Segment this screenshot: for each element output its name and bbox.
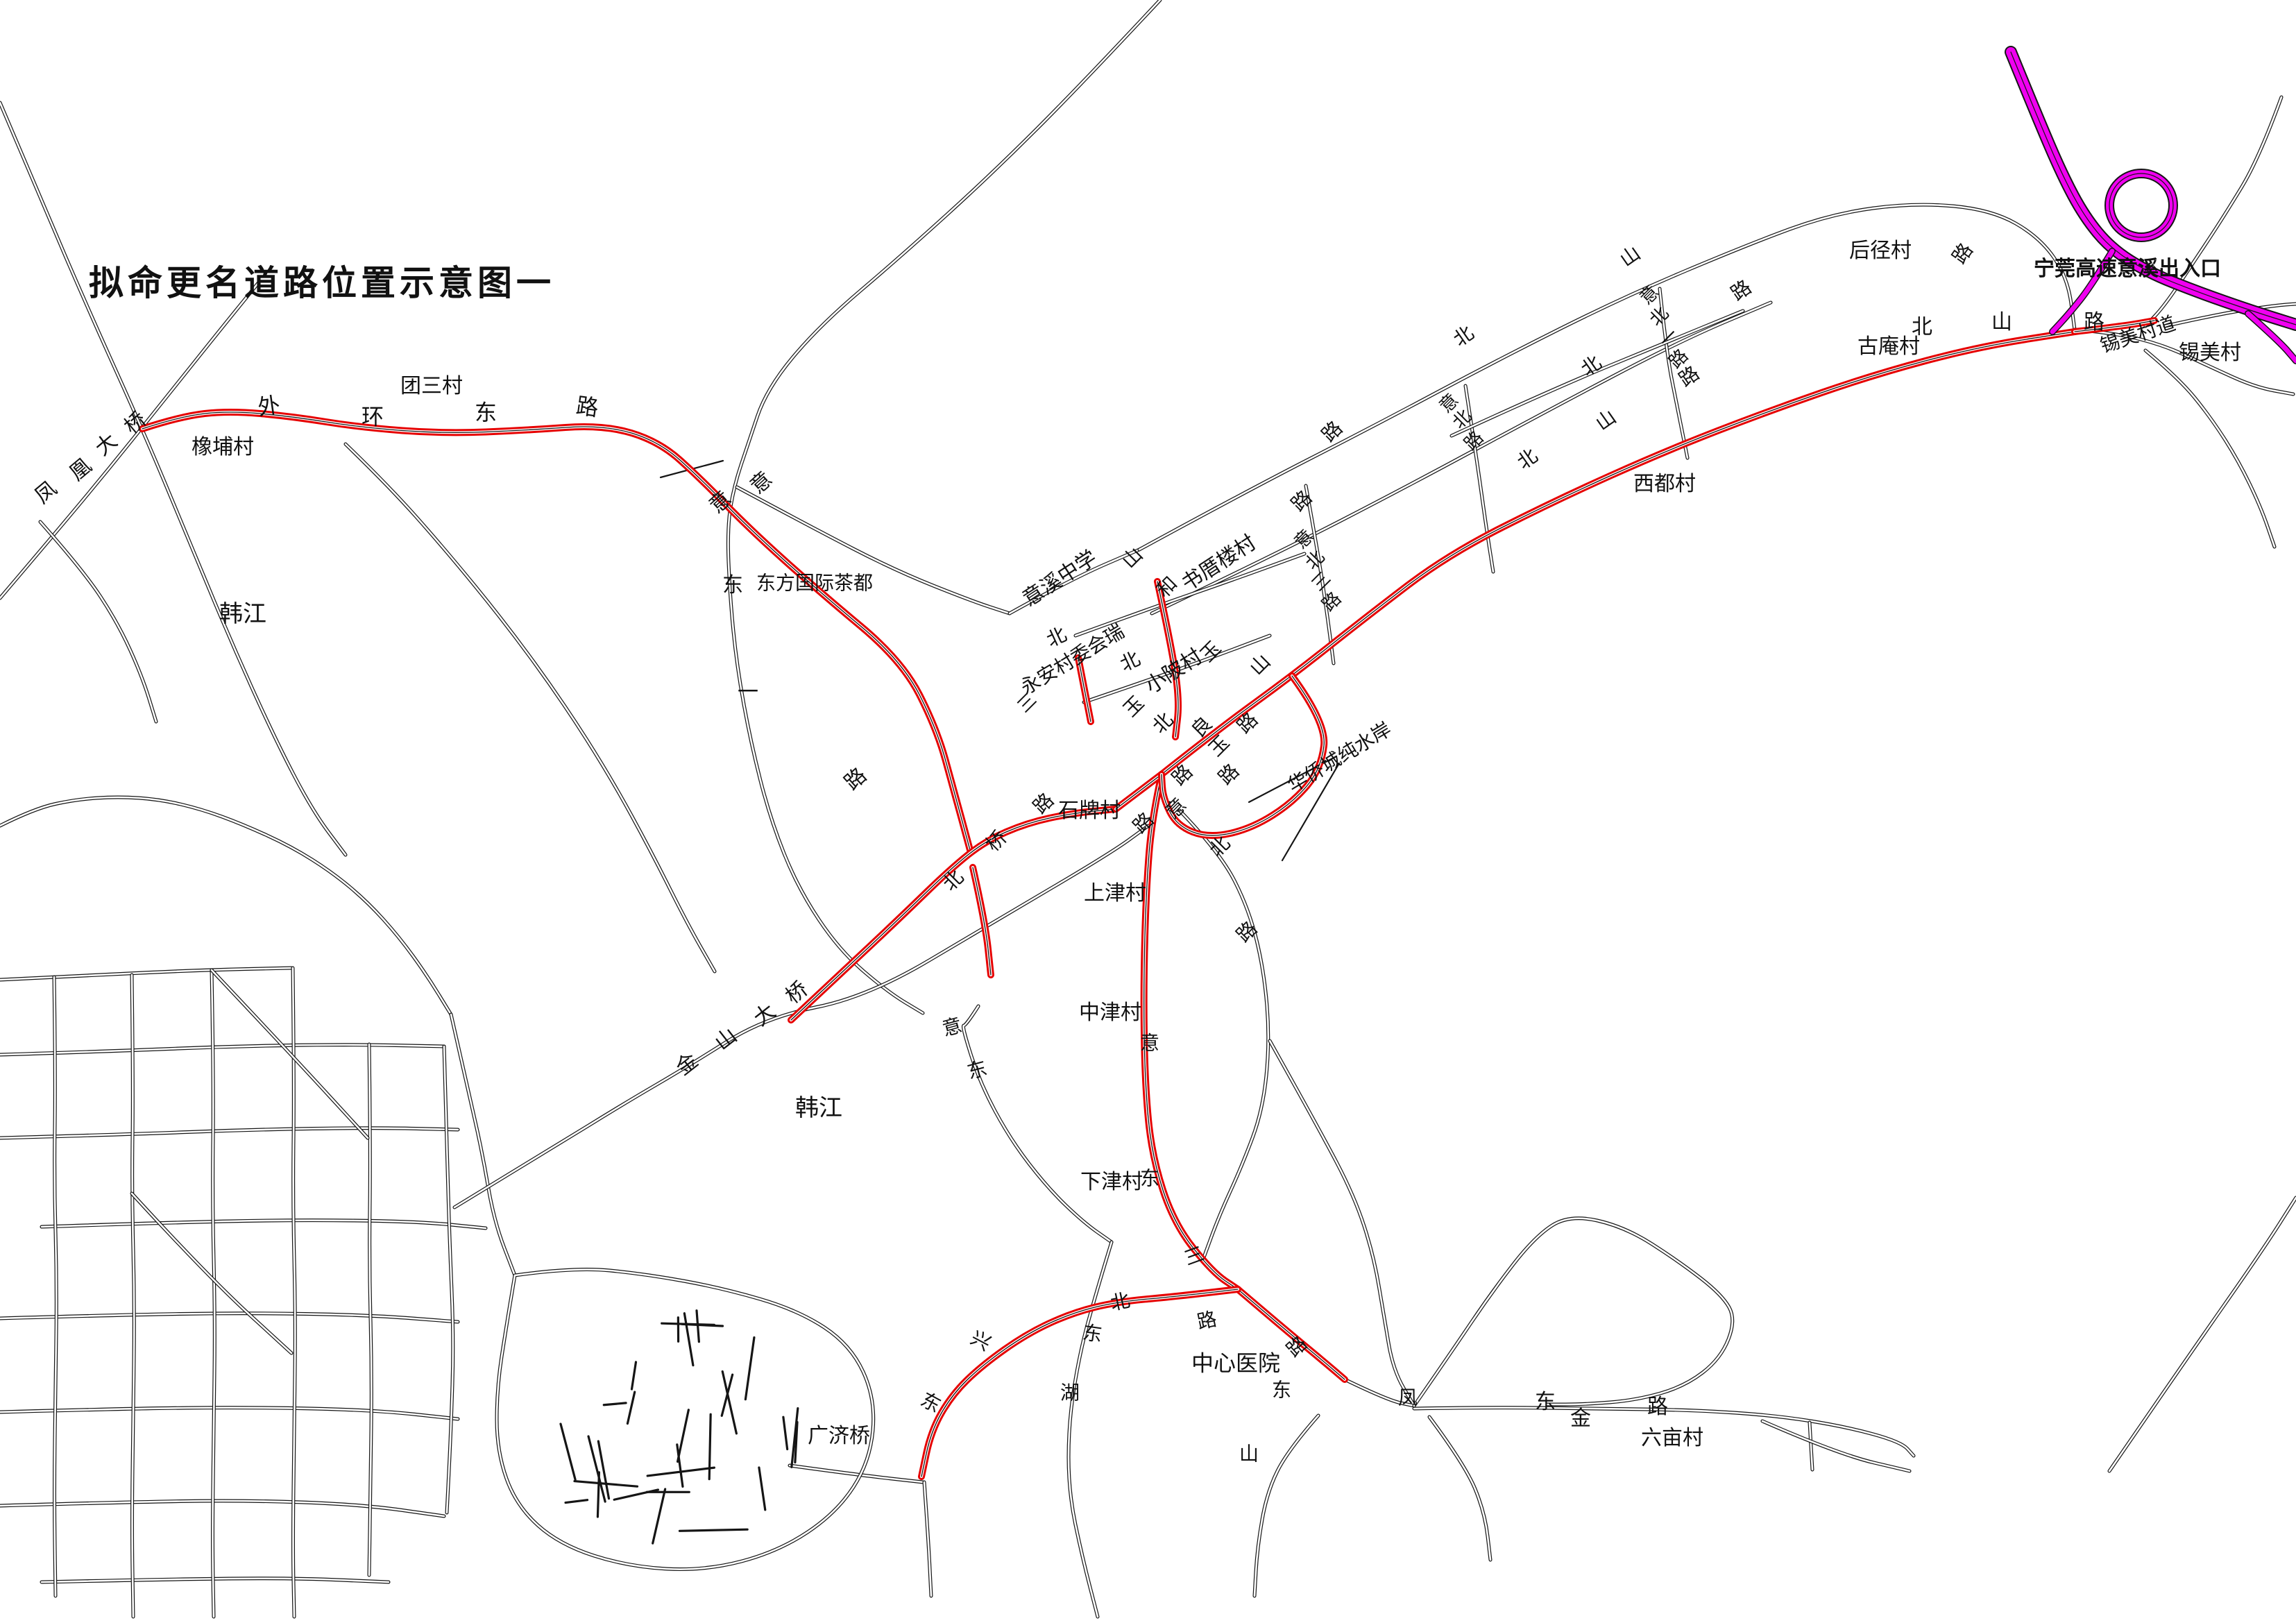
map-label: 古庵村 — [1857, 335, 1920, 358]
map-label: 路 — [1647, 1395, 1668, 1418]
old-town-street — [678, 1410, 689, 1462]
map-label: 上津村 — [1084, 882, 1146, 905]
map-label: 金 — [1570, 1407, 1591, 1430]
map-label: 凤 — [1398, 1387, 1418, 1409]
road — [1255, 1416, 1318, 1596]
road — [963, 1006, 1112, 1242]
old-town-street — [679, 1529, 747, 1531]
map-label: 后径村 — [1849, 239, 1912, 262]
old-town-street — [697, 1311, 699, 1342]
map-label: 山 — [1245, 650, 1275, 679]
map-label: 大 — [91, 430, 121, 461]
road — [1762, 1421, 1910, 1471]
map-label: 东 — [1081, 1322, 1103, 1347]
map-label: 北 — [1109, 1290, 1132, 1315]
map-label: 东 — [1535, 1391, 1556, 1413]
road — [0, 103, 346, 855]
old-town-street — [561, 1424, 575, 1479]
map-label: 东 — [1272, 1379, 1291, 1401]
map-label: 韩江 — [219, 601, 266, 627]
map-label: 路 — [1727, 276, 1755, 305]
road — [963, 1006, 1112, 1242]
old-town-street — [783, 1417, 788, 1449]
road — [2145, 350, 2274, 547]
map-label: 团三村 — [400, 375, 463, 398]
old-town-street — [566, 1500, 587, 1503]
old-town-street — [653, 1489, 665, 1543]
map-label: 路 — [2084, 311, 2104, 334]
map-label: 东 — [965, 1057, 989, 1083]
map-label: 路 — [575, 393, 600, 420]
road — [346, 444, 715, 971]
map-label: 金 — [672, 1049, 702, 1080]
map-label: 意 — [1140, 1032, 1159, 1054]
old-town-street — [627, 1392, 634, 1424]
map-label: 中心医院 — [1191, 1350, 1280, 1375]
map-label: 兴 — [967, 1327, 994, 1356]
map-label: 路 — [840, 764, 871, 795]
map-label: 韩江 — [795, 1095, 842, 1121]
map-label: 北 — [939, 867, 969, 896]
map-label: 凰 — [65, 454, 96, 486]
old-town-street — [745, 1337, 754, 1399]
road-highlighted — [1162, 332, 2075, 774]
map-label: 山 — [1239, 1443, 1259, 1465]
map-label: 凤 — [31, 477, 61, 509]
road — [1069, 1242, 1112, 1617]
old-town-street — [604, 1403, 626, 1405]
map-label: 东 — [722, 574, 743, 597]
map-label: 锡美村 — [2179, 341, 2241, 364]
road — [1429, 1417, 1490, 1560]
map-label: 下津村 — [1080, 1171, 1143, 1193]
map-label: 意 — [940, 1014, 964, 1040]
road — [1139, 205, 2075, 550]
road-highlighted — [791, 809, 1116, 1020]
map-label: 路 — [1214, 760, 1243, 789]
road-map-canvas: 凤凰大桥外环东路团三村橡埔村韩江韩江意意东一路东方国际茶都意溪中学山和书厝楼村意… — [0, 0, 2296, 1623]
road — [346, 444, 715, 971]
map-label: 三 — [1182, 1243, 1207, 1271]
old-town-street — [598, 1441, 609, 1499]
road — [454, 826, 1148, 1207]
expressway — [2011, 52, 2296, 325]
map-label: 东方国际茶都 — [756, 572, 873, 594]
map-label: 路 — [1282, 1332, 1311, 1362]
map-label: 环 — [362, 404, 384, 429]
map-label: 意溪中学 — [1019, 546, 1101, 611]
map-label: 永安村委会瑞 — [1017, 620, 1128, 699]
map-label: 橡埔村 — [192, 436, 254, 459]
map-label: 北 — [1117, 648, 1143, 676]
old-town-street — [631, 1362, 636, 1389]
road — [212, 970, 368, 1138]
map-stage: 凤凰大桥外环东路团三村橡埔村韩江韩江意意东一路东方国际茶都意溪中学山和书厝楼村意… — [0, 0, 2296, 1623]
road — [0, 797, 451, 1014]
map-label: 一 — [738, 681, 758, 704]
map-label: 东 — [475, 400, 497, 425]
map-label: 石牌村 — [1058, 799, 1121, 822]
road — [42, 1221, 486, 1228]
road — [454, 826, 1148, 1207]
road-highlighted — [791, 809, 1116, 1020]
old-town-street — [662, 1323, 715, 1325]
map-label: 华侨城纯水岸 — [1284, 718, 1395, 797]
road — [1180, 810, 1268, 1257]
map-label: 山 — [1616, 242, 1644, 271]
map-label: 山 — [1592, 406, 1620, 435]
old-town-street — [759, 1468, 765, 1510]
old-town-street — [684, 1314, 693, 1366]
map-label: 西都村 — [1633, 473, 1696, 495]
expressway — [2011, 52, 2296, 325]
map-label: 北 — [1044, 624, 1070, 652]
road — [0, 797, 451, 1014]
map-label: 锡美村道 — [2098, 312, 2178, 357]
map-label: 路 — [1195, 1308, 1218, 1334]
map-label: 路 — [1948, 239, 1978, 268]
map-label: 玉 — [1120, 692, 1149, 722]
map-label: 桥 — [120, 408, 151, 439]
interchange-loop — [2109, 173, 2173, 237]
road — [451, 1014, 515, 1275]
road — [924, 1482, 931, 1596]
map-label: 北 — [1449, 323, 1478, 351]
road — [1414, 1218, 1733, 1406]
road — [1069, 1242, 1112, 1617]
road-highlighted — [1162, 332, 2075, 774]
road — [2145, 350, 2274, 547]
map-label: 东 — [1140, 1167, 1159, 1189]
road — [40, 522, 156, 722]
road — [1139, 205, 2075, 550]
map-title: 拟命更名道路位置示意图一 — [89, 255, 555, 305]
road — [1414, 1218, 1733, 1406]
map-label: 外 — [256, 392, 282, 420]
road — [40, 522, 156, 722]
map-label: 北 — [1513, 445, 1542, 474]
map-label: 中津村 — [1079, 1001, 1141, 1024]
old-town-street — [709, 1414, 711, 1479]
road — [1429, 1417, 1490, 1560]
road — [1180, 810, 1268, 1257]
road-highlighted — [791, 809, 1116, 1020]
map-label: 宁莞高速意溪出入口 — [2034, 257, 2221, 280]
road — [0, 103, 346, 855]
map-label: 广济桥 — [808, 1425, 870, 1447]
map-label: 湖 — [1060, 1382, 1080, 1404]
expressway — [2011, 52, 2296, 325]
map-label: 山 — [1991, 311, 2012, 334]
road-highlighted — [1162, 332, 2075, 774]
map-label: 六亩村 — [1641, 1427, 1703, 1450]
road — [1762, 1421, 1910, 1471]
